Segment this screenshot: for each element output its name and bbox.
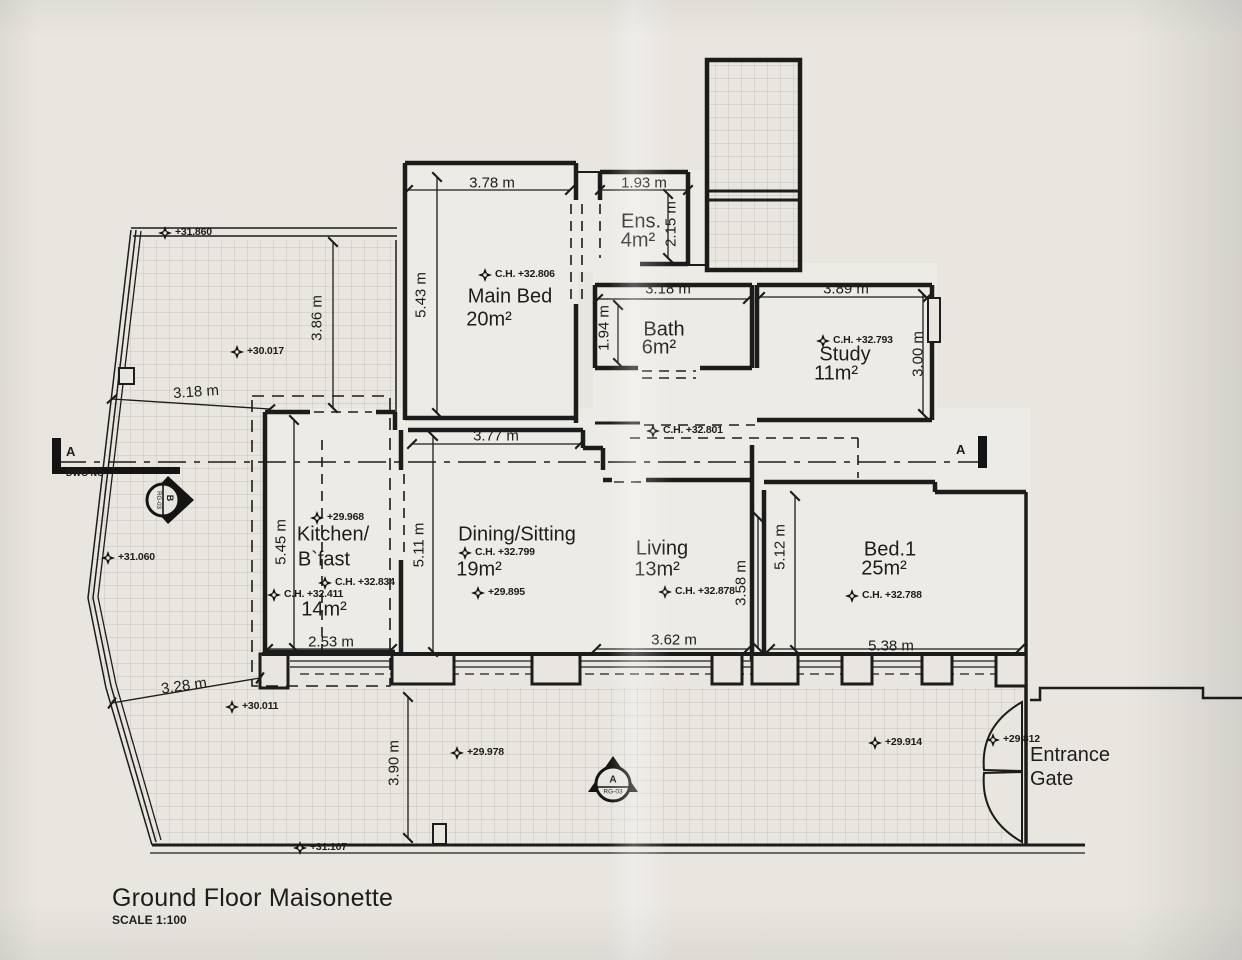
level-yard-south-3: +29.914: [885, 736, 922, 748]
room-area-main-bed: 20m²: [466, 309, 512, 332]
dim-study-width: 3.89 m: [823, 281, 869, 298]
ceiling-height-hall: C.H. +32.801: [663, 424, 723, 436]
drawing-scale: SCALE 1:100: [112, 913, 187, 927]
dim-main-bed-depth: 5.43 m: [413, 272, 430, 318]
label-entrance-gate-line2: Gate: [1030, 768, 1073, 791]
marker-b-reference: RG-03: [155, 491, 161, 509]
ceiling-height-living: C.H. +32.878: [675, 585, 735, 597]
marker-a-letter: A: [609, 775, 616, 786]
ceiling-height-kitchen: C.H. +32.834: [335, 576, 395, 588]
level-street: +31.107: [310, 841, 347, 853]
dim-study-depth: 3.00 m: [910, 331, 927, 377]
ceiling-height-main-bed: C.H. +32.806: [495, 268, 555, 280]
dim-yard-north-depth: 3.86 m: [309, 295, 326, 341]
floor-plan-photo: 3.78 m 1.93 m 2.15 m 5.43 m 3.18 m 1.94 …: [0, 0, 1242, 960]
dwg-no-label: DWG NO: [66, 468, 104, 478]
drawing-title: Ground Floor Maisonette: [112, 884, 393, 913]
ceiling-height-kitchen-2: C.H. +32.411: [284, 588, 343, 600]
room-label-kitchen-line1: Kitchen/: [297, 524, 369, 547]
room-area-ensuite: 4m²: [621, 230, 655, 253]
dim-main-bed-width: 3.78 m: [469, 175, 515, 192]
dim-ensuite-width: 1.93 m: [621, 175, 667, 192]
dim-living-width: 3.62 m: [651, 632, 697, 649]
level-yard-south-2: +29.978: [467, 746, 504, 758]
dim-bed1-depth: 5.12 m: [772, 524, 789, 570]
dim-dining-depth: 5.11 m: [411, 523, 428, 568]
dim-yard-south-depth: 3.90 m: [386, 740, 403, 786]
ceiling-height-bed1: C.H. +32.788: [862, 589, 922, 601]
room-area-living: 13m²: [634, 559, 680, 582]
section-letter-left: A: [66, 444, 75, 459]
dim-hall-width: 3.77 m: [473, 428, 519, 445]
room-label-main-bed: Main Bed: [468, 286, 553, 309]
room-area-bed1: 25m²: [861, 558, 907, 581]
room-area-study: 11m²: [814, 363, 858, 386]
room-label-living: Living: [636, 538, 688, 561]
room-label-kitchen-line2: B`fast: [298, 549, 350, 572]
ceiling-height-study: C.H. +32.793: [833, 334, 893, 346]
dim-kitchen-width: 2.53 m: [308, 634, 354, 651]
marker-a-reference: RG-03: [603, 789, 622, 796]
room-area-bath: 6m²: [642, 337, 676, 360]
level-kitchen-floor: +29.968: [327, 511, 364, 523]
level-yard-northwest: +31.860: [175, 226, 212, 238]
dim-bath-width: 3.18 m: [645, 281, 691, 298]
level-yard-south-1: +30.011: [242, 700, 278, 712]
level-yard-upper: +30.017: [247, 345, 284, 357]
room-label-dining: Dining/Sitting: [458, 524, 576, 547]
level-dining-floor: +29.895: [488, 586, 525, 598]
dim-bed1-width: 5.38 m: [868, 638, 914, 655]
marker-b-letter: B: [165, 495, 175, 502]
ceiling-height-dining: C.H. +32.799: [475, 546, 535, 558]
dim-living-depth: 3.58 m: [733, 560, 750, 606]
section-letter-right: A: [956, 442, 965, 457]
dim-ensuite-depth: 2.15 m: [663, 201, 680, 247]
dim-kitchen-depth: 5.45 m: [273, 519, 290, 565]
floor-plan-drawing: [0, 0, 1242, 960]
room-area-dining: 19m²: [456, 559, 502, 582]
shaft-courtyard: [707, 60, 800, 270]
level-gate: +29.812: [1003, 733, 1040, 745]
dim-yard-kitchen-width: 3.18 m: [173, 382, 220, 402]
label-entrance-gate-line1: Entrance: [1030, 744, 1110, 767]
level-yard-west: +31.060: [118, 551, 155, 563]
room-area-kitchen: 14m²: [301, 599, 347, 622]
dim-bath-depth: 1.94 m: [596, 305, 613, 351]
